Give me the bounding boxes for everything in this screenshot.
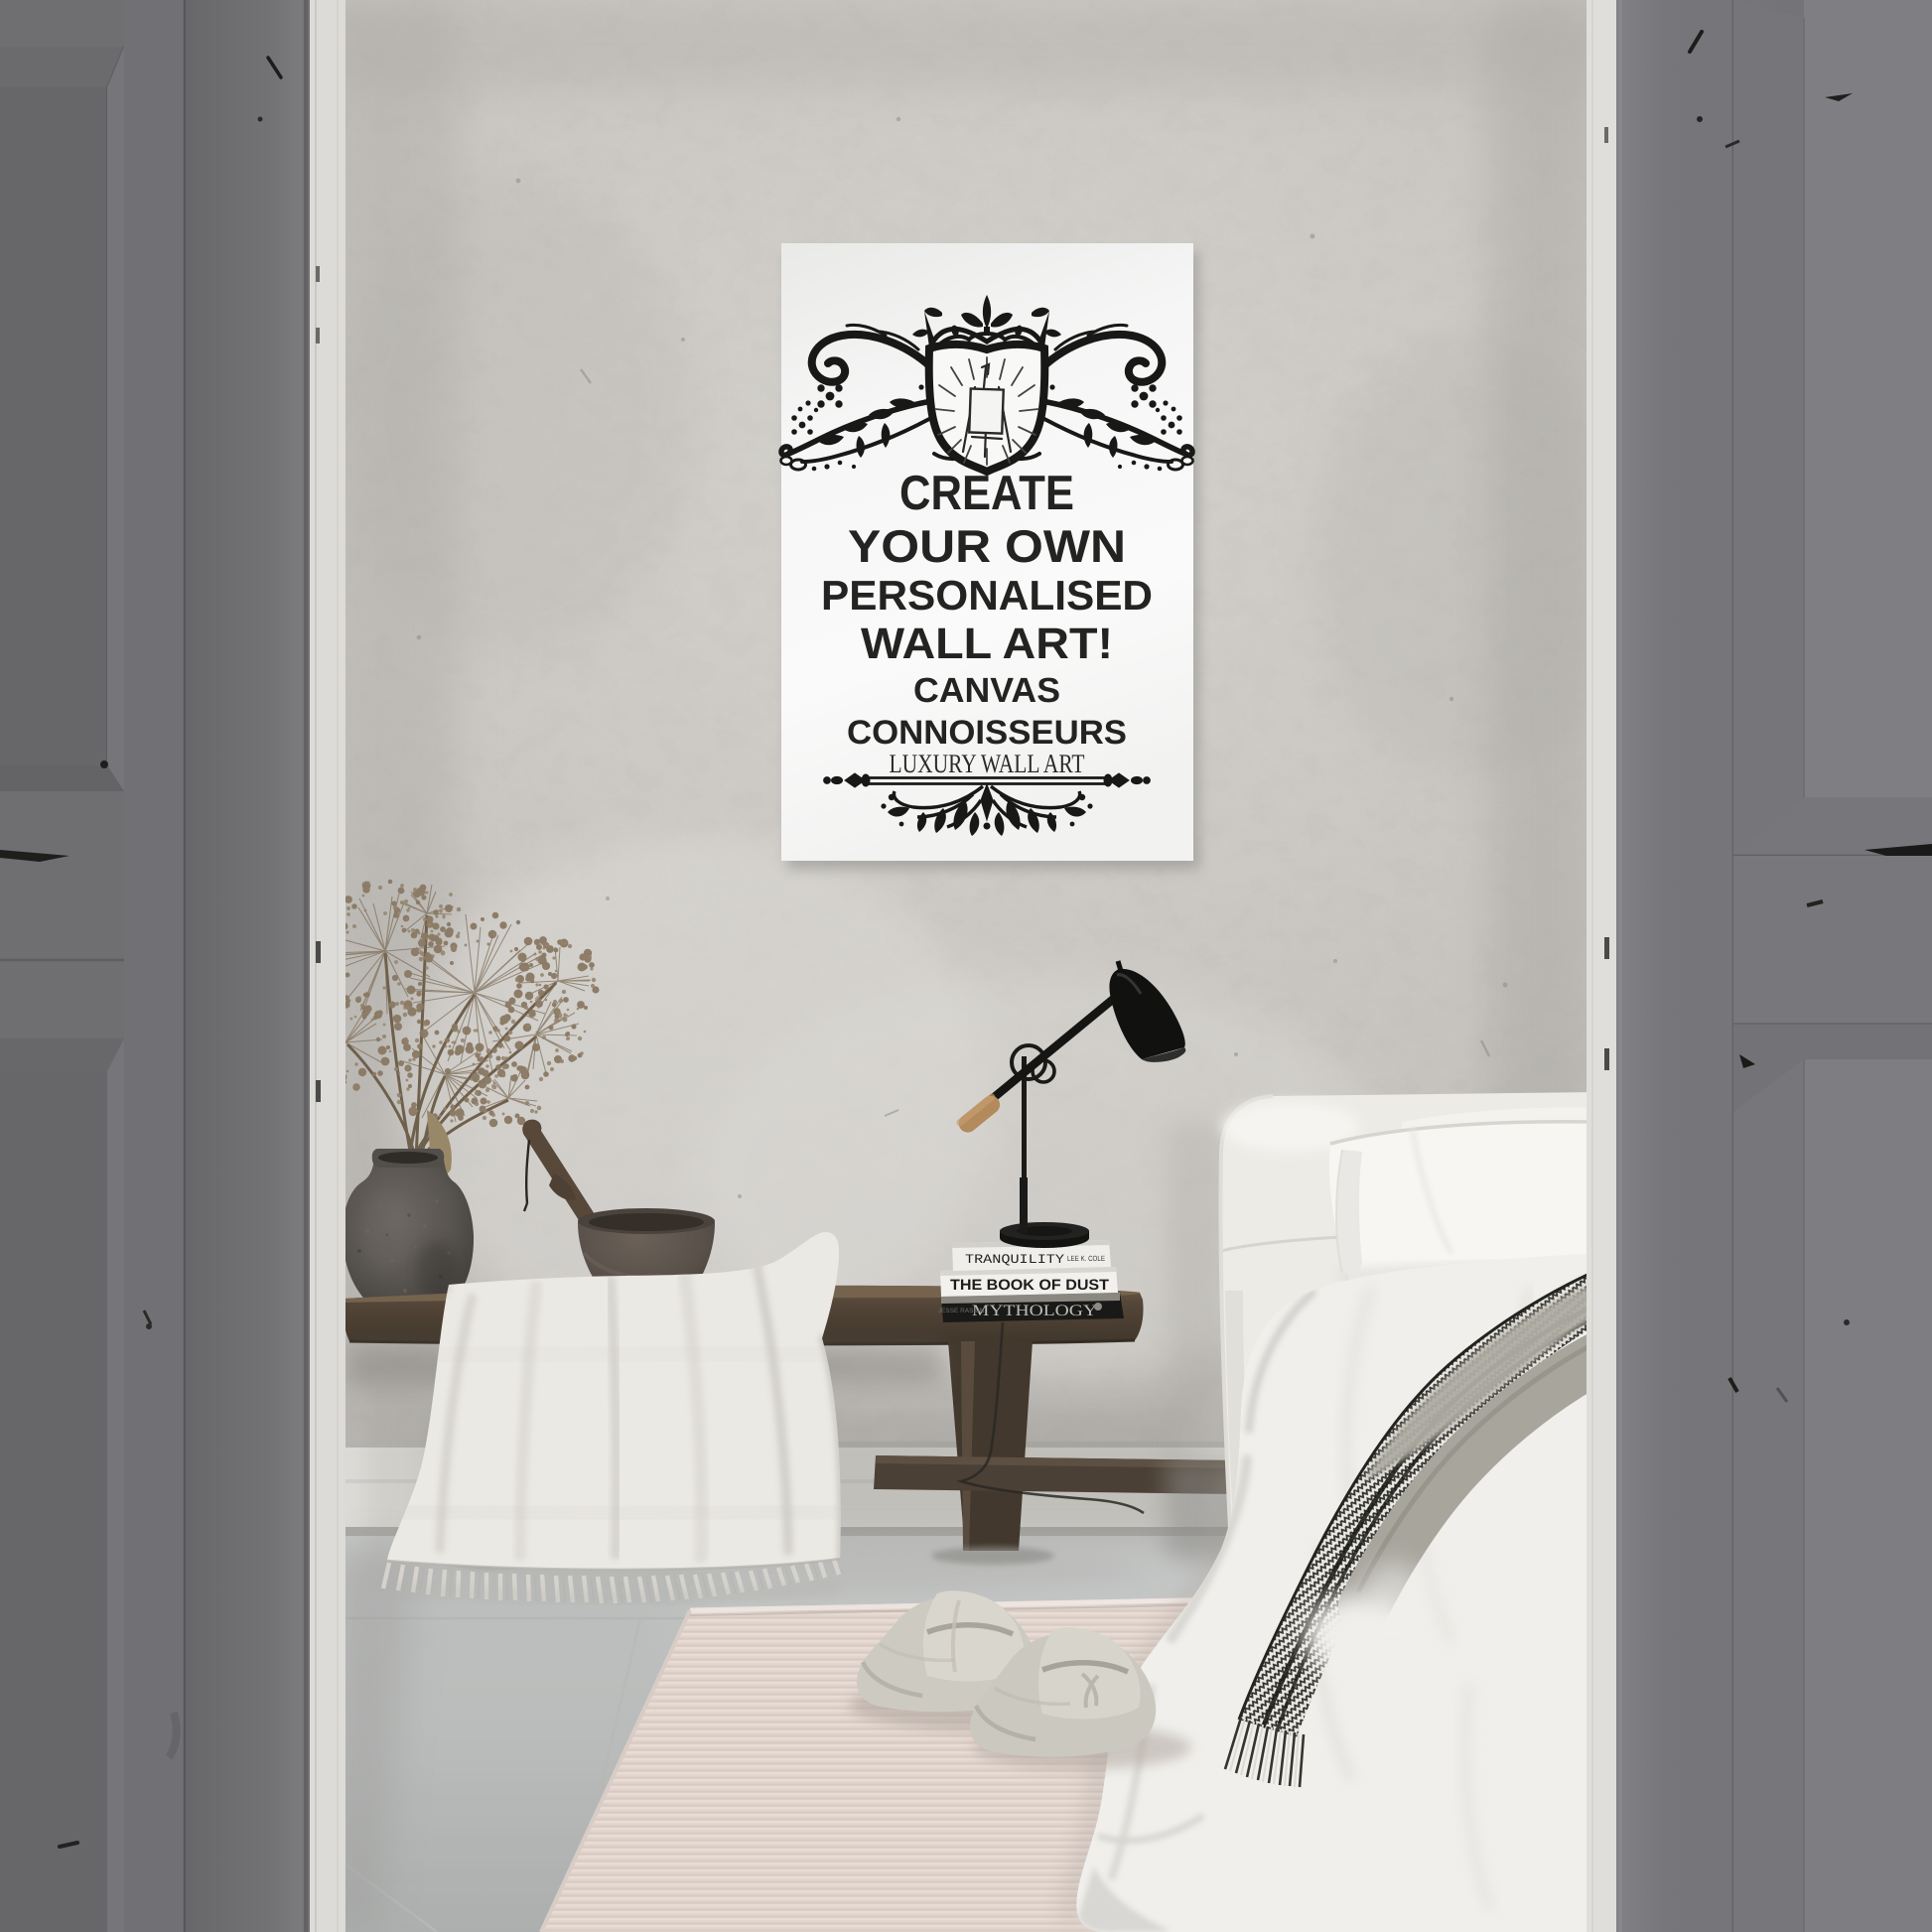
svg-text:PERSONALISED: PERSONALISED xyxy=(821,572,1153,619)
svg-text:MYTHOLOGY: MYTHOLOGY xyxy=(972,1303,1098,1319)
svg-text:CANVAS: CANVAS xyxy=(913,671,1060,710)
svg-text:YOUR OWN: YOUR OWN xyxy=(848,520,1126,572)
svg-text:TRANQUILITY: TRANQUILITY xyxy=(965,1252,1064,1267)
svg-text:JESSE RASKIN: JESSE RASKIN xyxy=(938,1308,985,1314)
svg-text:LUXURY WALL ART: LUXURY WALL ART xyxy=(890,749,1085,778)
svg-text:CONNOISSEURS: CONNOISSEURS xyxy=(847,714,1127,752)
svg-text:LEE K. COLE: LEE K. COLE xyxy=(1067,1254,1105,1263)
svg-text:CREATE: CREATE xyxy=(899,467,1074,520)
svg-text:THE BOOK OF DUST: THE BOOK OF DUST xyxy=(950,1277,1109,1294)
svg-text:WALL ART!: WALL ART! xyxy=(861,620,1113,668)
